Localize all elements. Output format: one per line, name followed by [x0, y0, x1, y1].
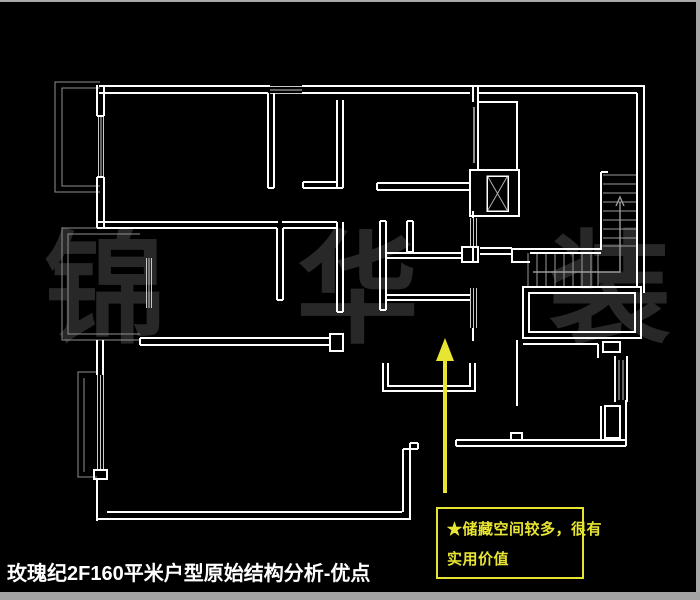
annotation-line-1: ★储藏空间较多，很有	[447, 515, 582, 545]
annotation-arrow	[0, 0, 700, 600]
screenshot-stage: 锦 华 装 饰	[0, 0, 700, 600]
annotation-box: ★储藏空间较多，很有 实用价值	[436, 507, 584, 579]
annotation-line-2: 实用价值	[447, 545, 582, 575]
page-title: 玫瑰纪2F160平米户型原始结构分析-优点	[7, 557, 370, 586]
